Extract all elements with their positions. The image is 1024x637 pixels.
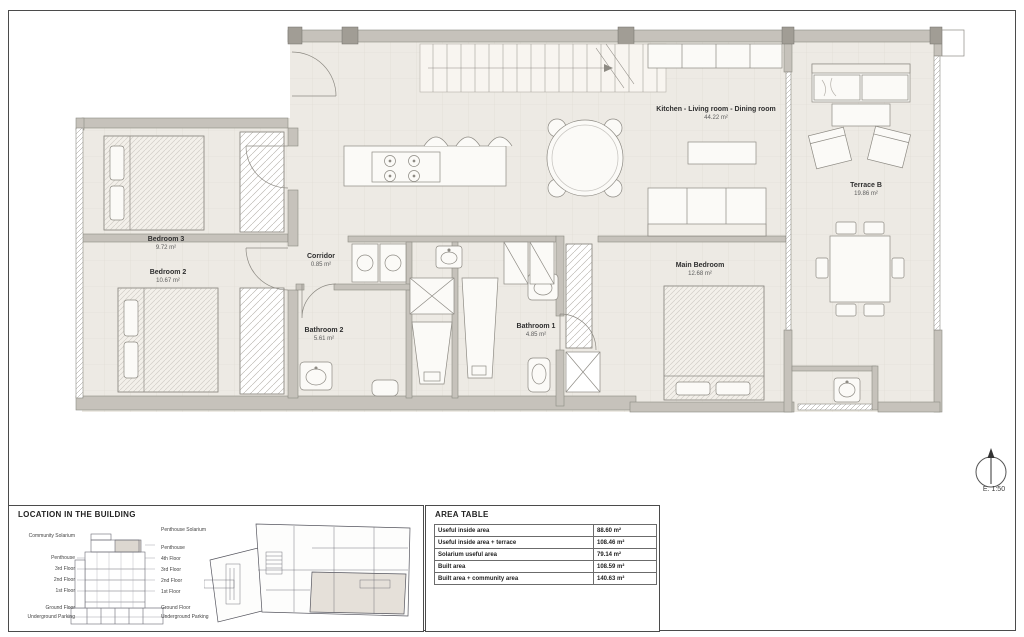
floor-label-penthouse-right: Penthouse — [161, 546, 223, 552]
floor-label-1st-right: 1st Floor — [161, 590, 223, 596]
floor-label-ground-right: Ground Floor — [161, 606, 223, 612]
floor-label-1st-left: 1st Floor — [15, 589, 75, 595]
terrace-coffee-table-icon — [832, 104, 890, 126]
room-label-terrace-b: Terrace B19.86 m² — [850, 182, 882, 197]
area-row-value: 79.14 m² — [594, 549, 657, 561]
table-row: Useful inside area + terrace 108.46 m² — [435, 537, 657, 549]
kitchen-counter-icon — [648, 44, 782, 68]
area-row-label: Built area + community area — [435, 573, 594, 585]
room-label-corridor: Corridor0.85 m² — [307, 253, 335, 268]
room-label-bathroom2: Bathroom 25.61 m² — [305, 327, 344, 342]
terrace-sofa-icon — [812, 64, 910, 102]
floor-plan-sheet: Bedroom 39.72 m² Bedroom 210.67 m² Corri… — [0, 0, 1024, 637]
building-section-drawing — [67, 520, 167, 630]
bed-bedroom2-icon — [118, 288, 218, 392]
area-table-panel: AREA TABLE Useful inside area 88.60 m² U… — [425, 505, 660, 632]
area-row-value: 108.59 m² — [594, 561, 657, 573]
table-row: Built area + community area 140.63 m² — [435, 573, 657, 585]
bed-bedroom3-icon — [104, 136, 204, 230]
dining-table-icon — [547, 119, 623, 197]
area-table-title: AREA TABLE — [435, 510, 489, 519]
apartment-floor-plan — [0, 0, 1024, 437]
floor-label-4th-right: 4th Floor — [161, 557, 223, 563]
area-row-value: 88.60 m² — [594, 525, 657, 537]
table-row: Built area 108.59 m² — [435, 561, 657, 573]
area-row-label: Built area — [435, 561, 594, 573]
location-in-building-panel: LOCATION IN THE BUILDING — [8, 505, 424, 632]
room-label-bathroom1: Bathroom 14.85 m² — [517, 323, 556, 338]
room-label-bedroom3: Bedroom 39.72 m² — [148, 236, 185, 251]
floor-label-ground-left: Ground Floor — [15, 606, 75, 612]
location-panel-title: LOCATION IN THE BUILDING — [18, 510, 136, 519]
scale-label: E. 1:50 — [966, 486, 1022, 493]
area-row-value: 108.46 m² — [594, 537, 657, 549]
floor-label-underground-left: Underground Parking — [15, 615, 75, 621]
floor-label-underground-right: Underground Parking — [161, 615, 223, 621]
floor-label-2nd-left: 2nd Floor — [15, 578, 75, 584]
floor-label-3rd-right: 3rd Floor — [161, 568, 223, 574]
floor-label-penthouse-solarium: Penthouse Solarium — [161, 528, 223, 534]
tv-unit-icon — [688, 142, 756, 164]
table-row: Solarium useful area 79.14 m² — [435, 549, 657, 561]
stairs-icon — [420, 44, 666, 92]
bed-main-bedroom-icon — [664, 286, 764, 400]
room-label-bedroom2: Bedroom 210.67 m² — [150, 269, 187, 284]
area-row-value: 140.63 m² — [594, 573, 657, 585]
room-label-main-bedroom: Main Bedroom12.68 m² — [676, 262, 725, 277]
area-table: Useful inside area 88.60 m² Useful insid… — [434, 524, 657, 585]
floor-label-penthouse-left: Penthouse — [15, 556, 75, 562]
floor-label-3rd-left: 3rd Floor — [15, 567, 75, 573]
floor-label-community-solarium: Community Solarium — [15, 534, 75, 540]
floor-label-2nd-right: 2nd Floor — [161, 579, 223, 585]
room-label-kitchen-living-dining: Kitchen - Living room - Dining room44.22… — [656, 106, 775, 121]
area-row-label: Solarium useful area — [435, 549, 594, 561]
table-row: Useful inside area 88.60 m² — [435, 525, 657, 537]
building-storey-mini-plan — [204, 512, 418, 628]
area-row-label: Useful inside area — [435, 525, 594, 537]
area-row-label: Useful inside area + terrace — [435, 537, 594, 549]
shower-icon — [410, 278, 454, 314]
sofa-icon — [648, 188, 766, 236]
